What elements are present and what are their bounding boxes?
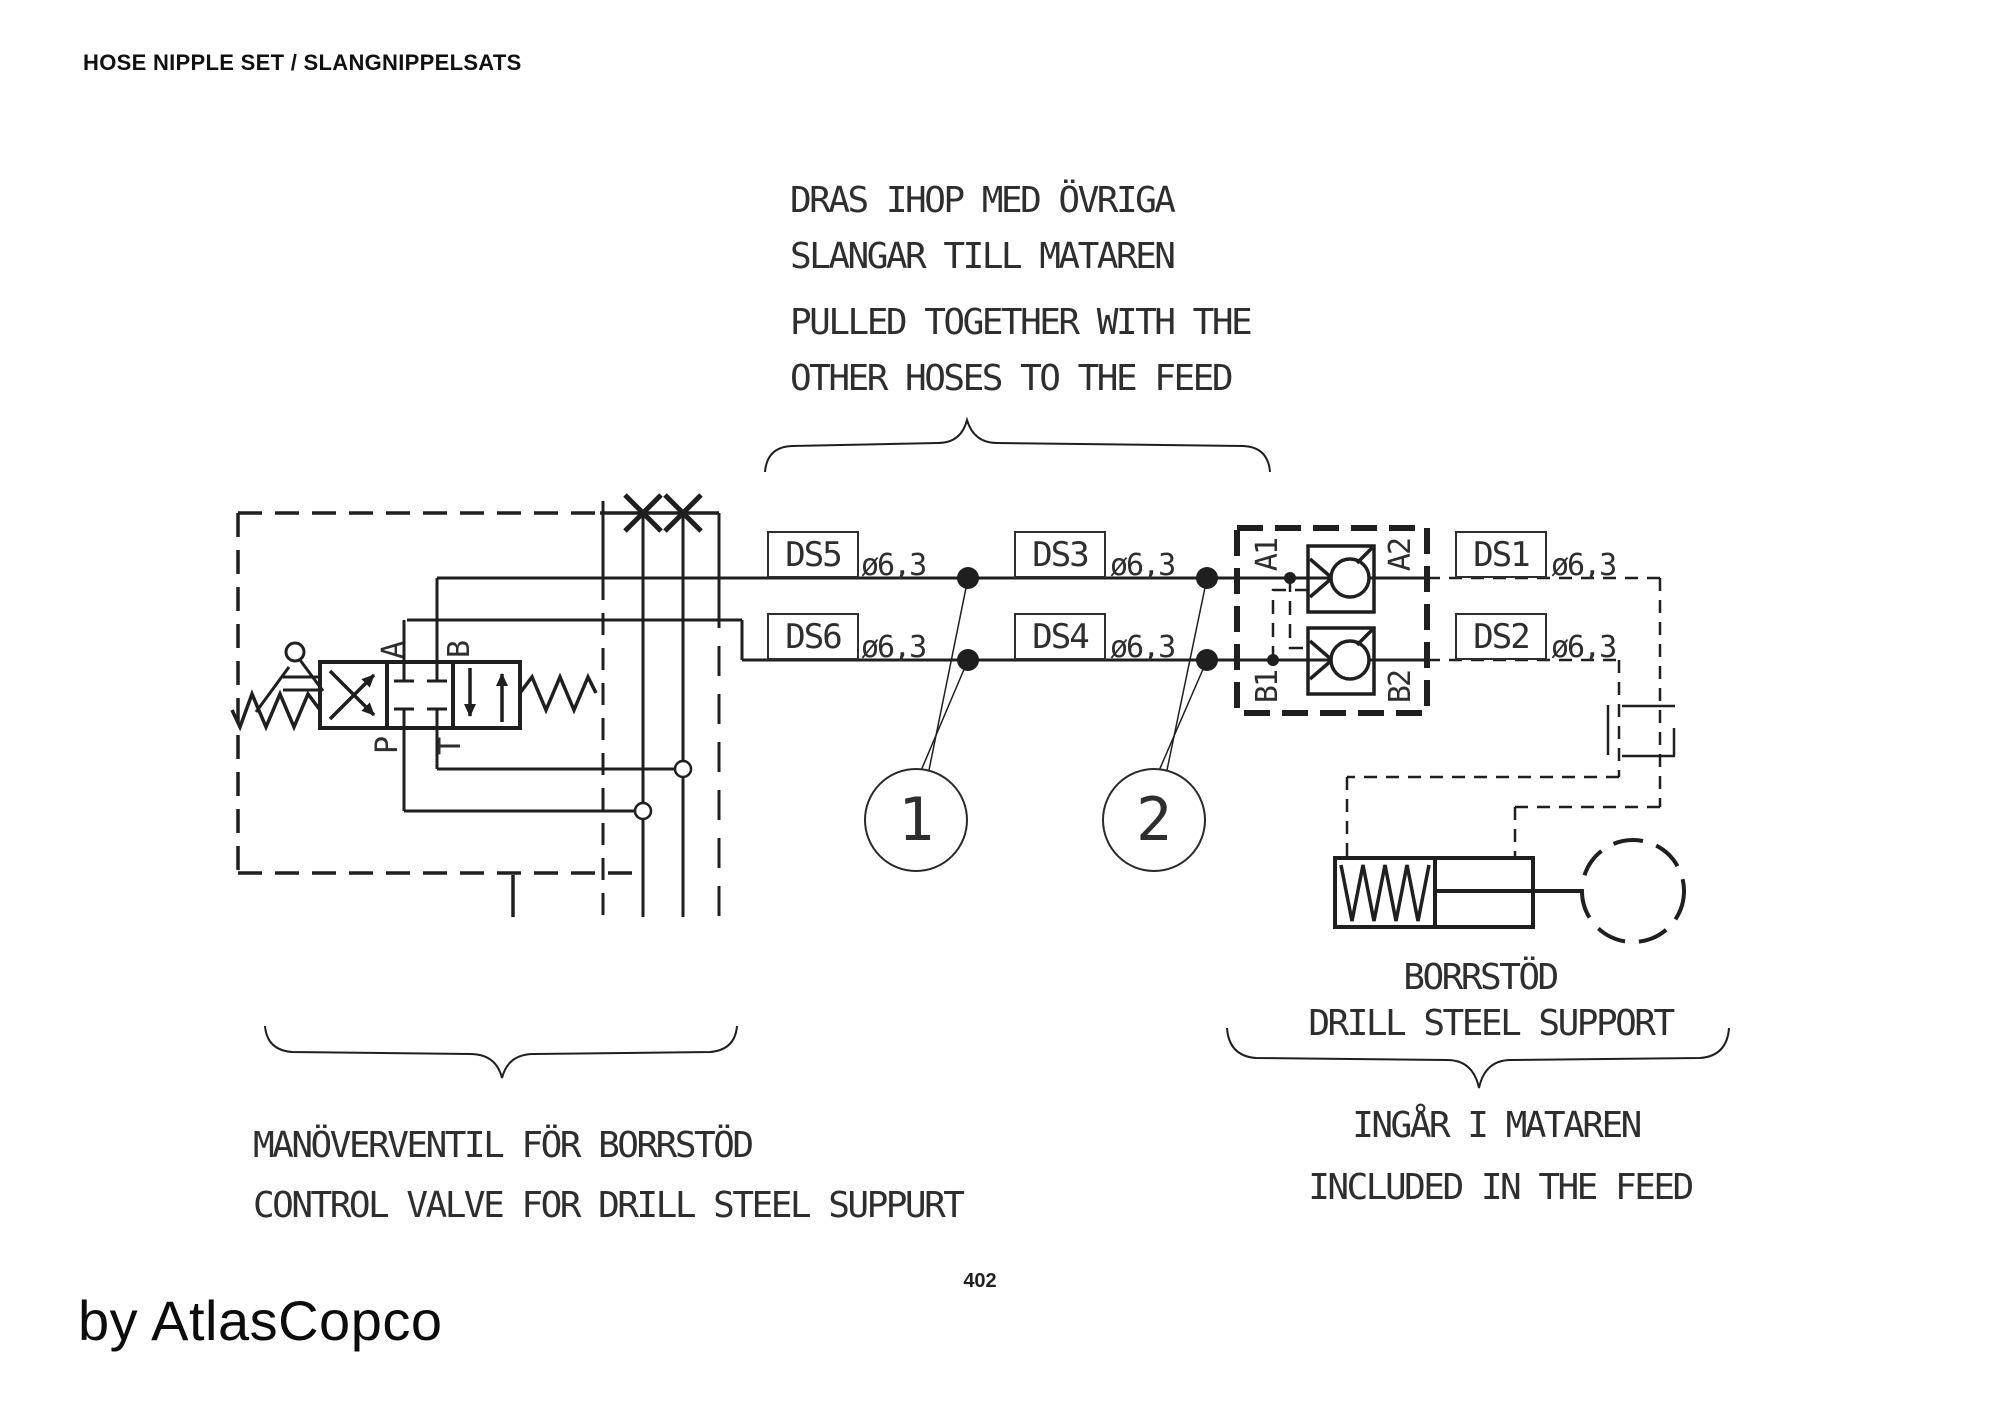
port-label-a2: A2 [1378, 533, 1422, 577]
drill-steel-support-cylinder [1335, 840, 1684, 942]
hose-size-ds5: ø6,3 [861, 551, 925, 581]
plugged-ports-line [600, 495, 719, 531]
hose-size-ds4: ø6,3 [1110, 633, 1174, 663]
spring-right [520, 677, 596, 710]
hose-size-ds1: ø6,3 [1551, 551, 1615, 581]
pilot-lines [1273, 578, 1308, 660]
callout-leader-lines [920, 578, 1207, 773]
hose-tag-ds3: DS3 [1014, 531, 1106, 578]
caption-valve-sv: MANÖVERVENTIL FÖR BORRSTÖD [253, 1128, 752, 1164]
hose-tag-ds4: DS4 [1014, 613, 1106, 660]
port-label-b2: B2 [1378, 665, 1422, 709]
caption-support-sv: BORRSTÖD [1340, 960, 1620, 996]
spring-left [232, 694, 320, 727]
caption-valve-en: CONTROL VALVE FOR DRILL STEEL SUPPURT [253, 1188, 962, 1224]
brace-top [765, 420, 1270, 472]
note-pulled-sv-line2: SLANGAR TILL MATAREN [790, 239, 1173, 275]
hose-size-ds6: ø6,3 [861, 633, 925, 663]
port-label-p: P [365, 724, 409, 768]
callout-2: 2 [1102, 768, 1206, 872]
hose-tag-ds2: DS2 [1455, 613, 1547, 660]
port-label-a1: A1 [1245, 533, 1289, 577]
note-pulled-en-line1: PULLED TOGETHER WITH THE [790, 305, 1250, 341]
page-number: 402 [930, 1270, 1030, 1293]
caption-support-en: DRILL STEEL SUPPORT [1268, 1006, 1713, 1042]
note-pulled-sv-line1: DRAS IHOP MED ÖVRIGA [790, 183, 1173, 219]
note-pulled-en-line2: OTHER HOSES TO THE FEED [790, 361, 1231, 397]
schematic-page: HOSE NIPPLE SET / SLANGNIPPELSATS DRAS I… [0, 0, 2000, 1414]
hose-tag-ds5: DS5 [767, 531, 859, 578]
page-title: HOSE NIPPLE SET / SLANGNIPPELSATS [83, 50, 522, 76]
hose-tag-ds1: DS1 [1455, 531, 1547, 578]
hose-size-ds2: ø6,3 [1551, 633, 1615, 663]
brace-bottom-left [265, 1026, 737, 1078]
port-label-a: A [371, 629, 415, 673]
port-label-t: T [428, 725, 472, 769]
control-valve-symbol [232, 578, 596, 811]
hose-size-ds3: ø6,3 [1110, 551, 1174, 581]
caption-feed-en: INCLUDED IN THE FEED [1282, 1170, 1718, 1206]
caption-feed-sv: INGÅR I MATAREN [1296, 1108, 1696, 1144]
feed-lines [603, 501, 719, 917]
brand-watermark: by AtlasCopco [78, 1288, 442, 1353]
support-roller-icon [1582, 840, 1684, 942]
port-label-b1: B1 [1245, 665, 1289, 709]
hose-tag-ds6: DS6 [767, 613, 859, 660]
callout-1: 1 [864, 768, 968, 872]
port-label-b: B [437, 628, 481, 672]
